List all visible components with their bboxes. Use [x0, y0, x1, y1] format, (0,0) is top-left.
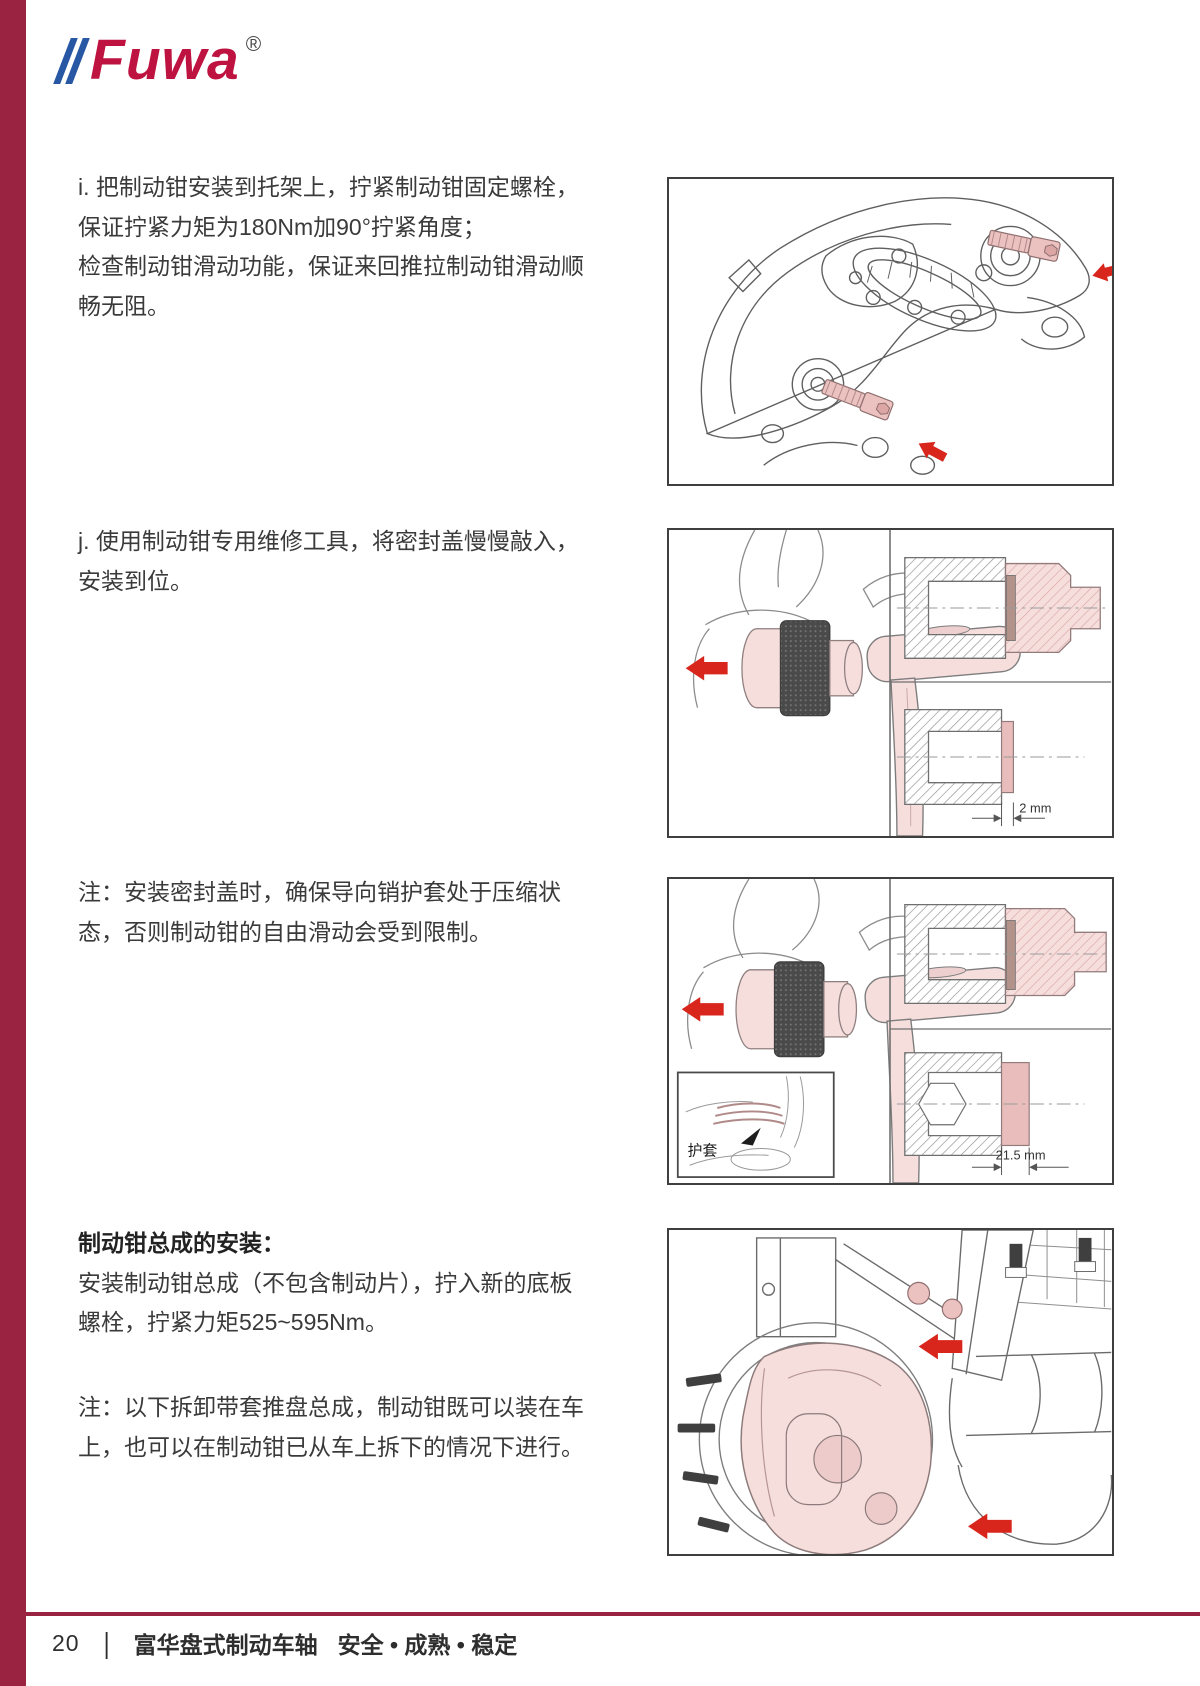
seal-cap-tool	[742, 621, 862, 716]
text-line: 检查制动钳滑动功能，保证来回推拉制动钳滑动顺	[78, 247, 608, 287]
dimension-label: 21.5 mm	[996, 1147, 1046, 1162]
figure-4-box	[667, 1228, 1114, 1556]
red-arrow-icon	[968, 1514, 1012, 1540]
registered-mark-icon: ®	[246, 34, 261, 55]
seal-cap-tool	[736, 962, 856, 1057]
mounting-bolt-icon	[820, 377, 893, 421]
text-line: 畅无阻。	[78, 287, 608, 327]
text-line: 保证拧紧力矩为180Nm加90°拧紧角度；	[78, 208, 608, 248]
cross-section-seated	[897, 558, 1107, 659]
text-line: 注：安装密封盖时，确保导向销护套处于压缩状	[78, 873, 608, 913]
boot-inset: 护套	[678, 1072, 834, 1177]
brake-caliper-highlight	[699, 1323, 932, 1554]
boot-label: 护套	[688, 1142, 718, 1159]
fuwa-logo: Fuwa ®	[62, 30, 261, 90]
section-heading: 制动钳总成的安装：	[78, 1224, 608, 1264]
text-line: 安装到位。	[78, 562, 608, 602]
figure-2-box: 2 mm	[667, 528, 1114, 838]
step-j-paragraph: j. 使用制动钳专用维修工具，将密封盖慢慢敲入， 安装到位。	[78, 522, 608, 601]
cross-section-depth: 21.5 mm	[897, 1053, 1085, 1175]
footer-tagline: 安全 • 成熟 • 稳定	[338, 1626, 518, 1660]
footer-title: 富华盘式制动车轴	[134, 1626, 318, 1660]
text-line: 注：以下拆卸带套推盘总成，制动钳既可以装在车	[78, 1388, 608, 1428]
cross-section-depth: 2 mm	[897, 710, 1085, 826]
cross-section-seated	[897, 905, 1107, 1004]
text-line: 螺栓，拧紧力矩525~595Nm。	[78, 1303, 608, 1343]
red-arrow-icon	[1090, 259, 1112, 284]
dimension-label: 2 mm	[1019, 800, 1051, 815]
manual-page: Fuwa ® i. 把制动钳安装到托架上，拧紧制动钳固定螺栓， 保证拧紧力矩为1…	[0, 0, 1200, 1686]
figure-3-box: 护套 21.5 mm	[667, 877, 1114, 1185]
figure-1-illustration	[669, 179, 1112, 484]
footer-separator: |	[104, 1626, 110, 1660]
mounting-bolt-icon	[987, 228, 1061, 262]
footer: 20 | 富华盘式制动车轴 安全 • 成熟 • 稳定	[52, 1626, 517, 1660]
step-i-paragraph: i. 把制动钳安装到托架上，拧紧制动钳固定螺栓， 保证拧紧力矩为180Nm加90…	[78, 168, 608, 326]
logo-text: Fuwa	[90, 30, 240, 90]
text-line: 上，也可以在制动钳已从车上拆下的情况下进行。	[78, 1428, 608, 1468]
figure-2-illustration: 2 mm	[669, 530, 1112, 836]
text-line: 态，否则制动钳的自由滑动会受到限制。	[78, 913, 608, 953]
text-line: i. 把制动钳安装到托架上，拧紧制动钳固定螺栓，	[78, 168, 608, 208]
figure-3-illustration: 护套 21.5 mm	[669, 879, 1112, 1183]
footer-rule	[26, 1612, 1200, 1616]
page-number: 20	[52, 1630, 80, 1657]
text-line: j. 使用制动钳专用维修工具，将密封盖慢慢敲入，	[78, 522, 608, 562]
note-removal-paragraph: 注：以下拆卸带套推盘总成，制动钳既可以装在车 上，也可以在制动钳已从车上拆下的情…	[78, 1388, 608, 1467]
red-arrow-icon	[914, 435, 949, 466]
figure-4-illustration	[669, 1230, 1112, 1554]
figure-1-box	[667, 177, 1114, 486]
note-seal-paragraph: 注：安装密封盖时，确保导向销护套处于压缩状 态，否则制动钳的自由滑动会受到限制。	[78, 873, 608, 952]
red-arrow-icon	[686, 656, 728, 681]
text-line: 安装制动钳总成（不包含制动片），拧入新的底板	[78, 1264, 608, 1304]
left-edge-bar	[0, 0, 26, 1686]
install-section: 制动钳总成的安装： 安装制动钳总成（不包含制动片），拧入新的底板 螺栓，拧紧力矩…	[78, 1224, 608, 1343]
